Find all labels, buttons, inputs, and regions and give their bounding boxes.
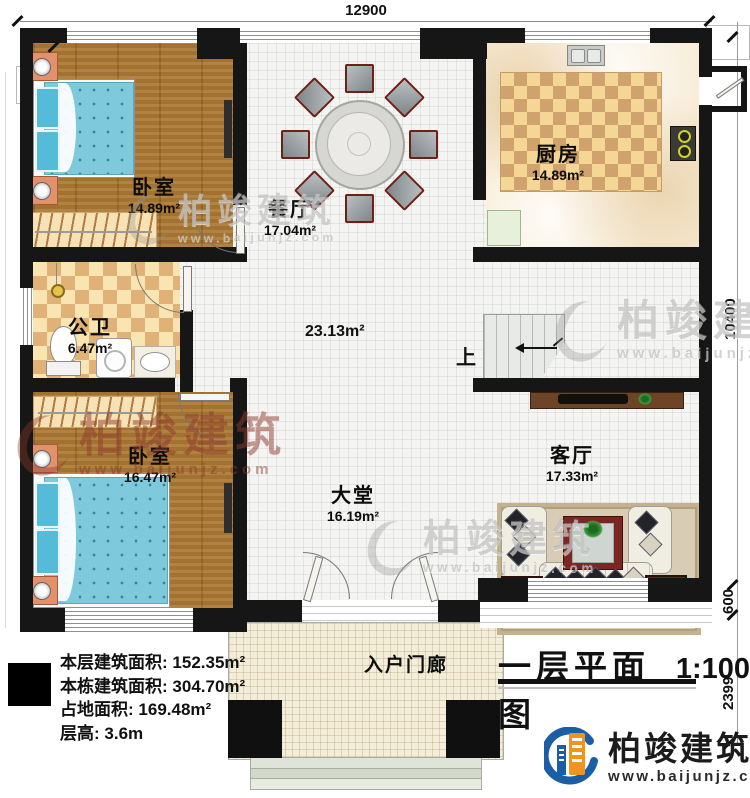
- company-website: www.baijunjz.com: [608, 768, 750, 785]
- fridge: [487, 210, 521, 246]
- company-name: 柏竣建筑: [608, 732, 750, 765]
- wall-kitchen-left: [473, 43, 486, 200]
- dining-chair: [281, 130, 310, 159]
- toilet-tank: [46, 361, 81, 376]
- dimension-right-mid: 600: [720, 578, 737, 614]
- window-top-kitchen: [525, 28, 650, 43]
- label-dining: 餐厅 17.04m²: [250, 199, 330, 238]
- bed-pillow: [35, 529, 60, 575]
- label-bedroom1: 卧室 14.89m²: [114, 177, 194, 216]
- wall-bottom-living: [478, 578, 528, 602]
- window-bottom-living: [528, 578, 648, 602]
- room-area: 16.47m²: [110, 469, 190, 485]
- room-name: 公卫: [50, 317, 130, 340]
- exterior-ground-line: [5, 72, 6, 628]
- stat-label: 占地面积:: [60, 700, 134, 719]
- legend-column-symbol: [8, 663, 51, 706]
- wall-right: [699, 105, 712, 600]
- tv-bedroom1: [224, 100, 232, 158]
- wall-bedroom1-bottom: [20, 247, 247, 262]
- room-area: 6.47m²: [50, 340, 130, 356]
- label-lobby: 大堂 16.19m²: [313, 485, 393, 524]
- wall-bottom-hall: [438, 600, 480, 622]
- alcove-wall-bottom: [712, 106, 747, 112]
- porch-column: [446, 700, 500, 758]
- stat-value: 152.35m²: [172, 653, 245, 672]
- bed-pillow: [35, 130, 60, 172]
- window-top-dining: [240, 28, 420, 43]
- dimension-top: 12900: [20, 2, 712, 19]
- porch-step: [250, 778, 482, 790]
- stat-value: 304.70m²: [172, 677, 245, 696]
- kitchen-sink: [567, 45, 605, 66]
- stat-label: 本栋建筑面积:: [60, 677, 168, 696]
- wall-bathroom-bottom: [20, 378, 175, 392]
- stair-arrow-head: [515, 343, 524, 353]
- tv-living: [558, 394, 628, 404]
- wall-stairs: [473, 378, 712, 392]
- living-terrace-sill: [480, 602, 712, 628]
- window-left-bathroom: [20, 288, 33, 345]
- wall-bottom: [193, 608, 247, 632]
- label-kitchen: 厨房 14.89m²: [518, 144, 598, 183]
- stat-row: 占地面积: 169.48m²: [60, 698, 245, 722]
- dimension-line-right: [737, 22, 738, 745]
- bedroom2-door-leaf: [180, 393, 230, 401]
- pendant-cord: [56, 263, 57, 285]
- label-hall-area: 23.13m²: [305, 323, 365, 341]
- plant: [638, 393, 652, 405]
- bed-pillow: [35, 87, 60, 129]
- wall-bathroom-right: [180, 310, 193, 392]
- stat-label: 层高:: [60, 724, 100, 743]
- stat-row: 本栋建筑面积: 304.70m²: [60, 675, 245, 699]
- label-porch: 入户门廊: [346, 655, 466, 677]
- title-underline-thin: [498, 687, 696, 689]
- bathroom-sink: [140, 352, 170, 372]
- floor-plan-canvas: 12900 10400 600 2399: [0, 0, 750, 798]
- wall-kitchen-bottom: [473, 247, 712, 262]
- stat-value: 169.48m²: [138, 700, 211, 719]
- wall-top: [197, 28, 240, 43]
- alcove-door-leaf: [716, 77, 745, 99]
- wall-bedroom2-right: [233, 392, 247, 608]
- stair-direction-arrow: [523, 347, 557, 349]
- wardrobe: [30, 212, 157, 249]
- wall-bottom-living: [648, 578, 712, 602]
- bathroom-door-leaf: [183, 266, 192, 312]
- tv-bedroom2: [224, 483, 232, 533]
- label-bathroom: 公卫 6.47m²: [50, 317, 130, 356]
- stat-label: 本层建筑面积:: [60, 653, 168, 672]
- dimension-line-top: [20, 21, 712, 22]
- room-name: 卧室: [114, 177, 194, 200]
- room-name: 餐厅: [250, 199, 330, 222]
- pendant-lamp: [51, 284, 65, 298]
- wall-right: [699, 28, 712, 77]
- stove: [670, 126, 696, 161]
- room-area: 16.19m²: [313, 508, 393, 524]
- room-area: 14.89m²: [518, 167, 598, 183]
- room-name: 大堂: [313, 485, 393, 508]
- room-area: 17.33m²: [532, 468, 612, 484]
- room-name: 入户门廊: [346, 655, 466, 677]
- wardrobe: [33, 396, 157, 428]
- room-area: 14.89m²: [114, 200, 194, 216]
- dining-chair: [345, 64, 374, 93]
- company-logo-icon: [544, 727, 600, 789]
- stat-row: 层高: 3.6m: [60, 722, 245, 746]
- room-name: 卧室: [110, 446, 190, 469]
- dining-chair: [345, 194, 374, 223]
- stat-row: 本层建筑面积: 152.35m²: [60, 651, 245, 675]
- stairs-up-label: 上: [456, 341, 476, 370]
- room-name: 客厅: [532, 445, 612, 468]
- label-bedroom2: 卧室 16.47m²: [110, 446, 190, 485]
- wall-bedroom1-right: [233, 43, 247, 205]
- label-living: 客厅 17.33m²: [532, 445, 612, 484]
- wall-bottom-hall: [247, 600, 302, 622]
- plant: [583, 520, 603, 538]
- stat-value: 3.6m: [104, 724, 143, 743]
- bed-pillow: [35, 482, 60, 528]
- title-underline: [498, 679, 696, 684]
- building-stats: 本层建筑面积: 152.35m² 本栋建筑面积: 304.70m² 占地面积: …: [60, 651, 245, 745]
- room-name: 厨房: [518, 144, 598, 167]
- company-logo: 柏竣建筑 www.baijunjz.com: [544, 727, 750, 789]
- window-top-bedroom1: [67, 28, 197, 43]
- room-area: 17.04m²: [250, 222, 330, 238]
- wall-bottom: [20, 608, 65, 632]
- wall-top: [420, 28, 525, 43]
- dimension-right: 10400: [722, 270, 739, 340]
- dining-table-center: [347, 132, 371, 156]
- bedroom1-door-leaf: [236, 207, 245, 254]
- dining-chair: [409, 130, 438, 159]
- entry-threshold: [302, 600, 438, 622]
- wall-bathroom-bottom: [230, 378, 247, 392]
- window-bottom-bedroom2: [65, 608, 193, 632]
